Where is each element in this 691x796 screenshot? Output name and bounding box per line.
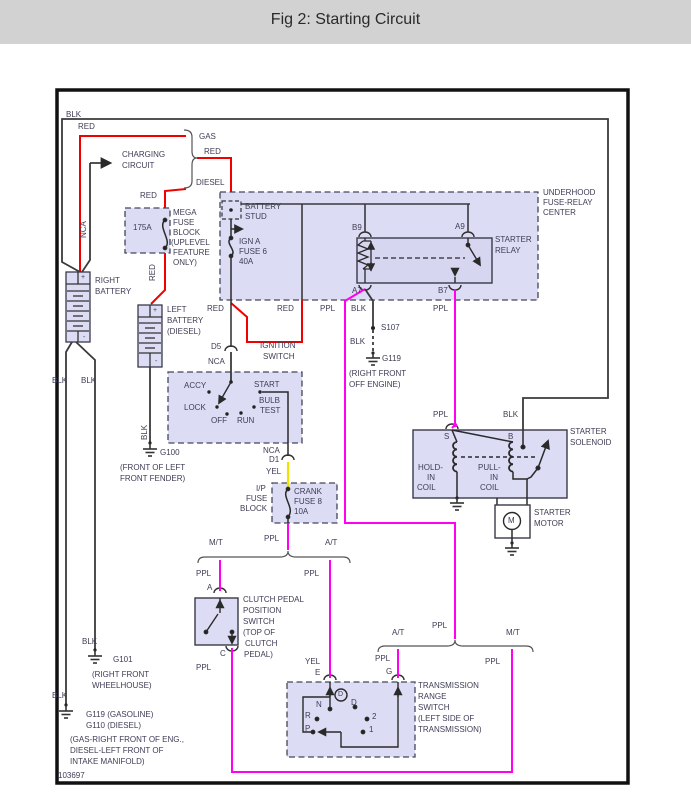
label-yel-trans-e: YEL — [305, 658, 320, 666]
g119-g110-l2: G110 (DIESEL) — [86, 722, 141, 730]
underhood-l2: FUSE-RELAY — [543, 199, 593, 207]
label-ppl-clutch-c: PPL — [196, 664, 211, 672]
trans-pos-d-circled: D — [338, 691, 343, 698]
motor-m: M — [508, 517, 515, 525]
label-at-1: A/T — [325, 539, 337, 547]
trans-terminal-g: G — [386, 668, 392, 676]
label-nca-d1: NCA — [263, 447, 280, 455]
label-ppl-a7: PPL — [320, 305, 335, 313]
battery-stud-l1: BATTERY — [245, 203, 281, 211]
left-battery-l3: (DIESEL) — [167, 328, 201, 336]
clutch-l5: CLUTCH — [245, 640, 277, 648]
battery-stud-l2: STUD — [245, 213, 267, 221]
charging-circuit-line1: CHARGING — [122, 151, 165, 159]
label-red-d5: RED — [207, 305, 224, 313]
g101-l2: WHEELHOUSE) — [92, 682, 152, 690]
g119-g110-n3: INTAKE MANIFOLD) — [70, 758, 145, 766]
ignition-bulb: BULB — [259, 397, 280, 405]
left-battery-minus: - — [155, 358, 157, 365]
trans-terminal-e: E — [315, 669, 320, 677]
ppl-junction-dot — [453, 423, 457, 427]
label-ppl-clutch-a: PPL — [196, 570, 211, 578]
g119-g110-l1: G119 (GASOLINE) — [86, 711, 153, 719]
solenoid-l1: STARTER — [570, 428, 607, 436]
wire-battery-grounds — [66, 342, 150, 705]
g119-engine-l2: OFF ENGINE) — [349, 381, 401, 389]
ip-fuse-l2: FUSE — [246, 495, 267, 503]
ign-fuse-l1: IGN A — [239, 238, 260, 246]
clutch-l1: CLUTCH PEDAL — [243, 596, 304, 604]
label-red-gas: RED — [204, 148, 221, 156]
g101-name: G101 — [113, 656, 133, 664]
underhood-l1: UNDERHOOD — [543, 189, 595, 197]
label-blk-g100: BLK — [141, 425, 149, 440]
ignition-off: OFF — [211, 417, 227, 425]
diagram-number: 103697 — [58, 772, 85, 780]
right-battery-l2: BATTERY — [95, 288, 131, 296]
label-ppl-fuse-out: PPL — [264, 535, 279, 543]
label-gas: GAS — [199, 133, 216, 141]
label-ppl-trans-e: PPL — [304, 570, 319, 578]
charging-circuit-line2: CIRCUIT — [122, 162, 154, 170]
label-diesel: DIESEL — [196, 179, 224, 187]
clutch-l2: POSITION — [243, 607, 281, 615]
trans-pos-1: 1 — [369, 726, 373, 734]
label-red-vert: RED — [149, 264, 157, 281]
left-battery-l2: BATTERY — [167, 317, 203, 325]
s107-splice-dot — [371, 326, 375, 330]
g100-name: G100 — [160, 449, 180, 457]
label-ppl-brace2: PPL — [432, 622, 447, 630]
trans-pos-d: D — [351, 699, 357, 707]
ignition-test: TEST — [260, 407, 280, 415]
relay-a9: A9 — [455, 223, 465, 231]
ignition-l2: SWITCH — [263, 353, 295, 361]
crank-fuse-l1: CRANK — [294, 488, 322, 496]
mega-fuse-l2: FUSE — [173, 219, 194, 227]
ignition-l1: IGNITION — [260, 342, 296, 350]
label-blk-left1: BLK — [52, 377, 67, 385]
label-blk-left2: BLK — [81, 377, 96, 385]
label-blk-a7: BLK — [351, 305, 366, 313]
ign-fuse-l3: 40A — [239, 258, 253, 266]
pull-in-l2: IN — [490, 474, 498, 482]
right-battery-plus: + — [81, 274, 85, 281]
ignition-d5: D5 — [211, 343, 221, 351]
clutch-terminal-a: A — [207, 584, 212, 592]
label-nca-d5: NCA — [208, 358, 225, 366]
mega-fuse-l6: ONLY) — [173, 259, 197, 267]
g119-g110-n2: DIESEL-LEFT FRONT OF — [70, 747, 164, 755]
label-ppl-s: PPL — [433, 411, 448, 419]
ignition-accy: ACCY — [184, 382, 206, 390]
trans-pos-2: 2 — [372, 713, 376, 721]
left-battery-plus: + — [153, 307, 157, 314]
crank-fuse-l2: FUSE 8 — [294, 498, 322, 506]
trans-pos-n: N — [316, 701, 322, 709]
trans-pos-r: R — [305, 712, 311, 720]
g101-l1: (RIGHT FRONT — [92, 671, 149, 679]
mega-fuse-l3: BLOCK — [173, 229, 200, 237]
wire-nca-charging — [82, 163, 110, 272]
g119-engine-l1: (RIGHT FRONT — [349, 370, 406, 378]
clutch-l6: PEDAL) — [244, 651, 273, 659]
ignition-d1: D1 — [269, 456, 279, 464]
label-red-top: RED — [78, 123, 95, 131]
s107-label: S107 — [381, 324, 400, 332]
relay-b9: B9 — [352, 224, 362, 232]
underhood-l3: CENTER — [543, 209, 576, 217]
mega-fuse-l4: (UPLEVEL — [171, 239, 210, 247]
motor-l2: MOTOR — [534, 520, 564, 528]
label-nca-vert: NCA — [80, 221, 88, 238]
relay-b7: B7 — [438, 287, 448, 295]
label-blk-top: BLK — [66, 111, 81, 119]
label-ppl-trans-g: PPL — [375, 655, 390, 663]
ip-fuse-l1: I/P — [256, 485, 266, 493]
label-mt-2: M/T — [506, 629, 520, 637]
mega-fuse-amp: 175A — [133, 224, 152, 232]
trans-l2: RANGE — [418, 693, 446, 701]
clutch-l4: (TOP OF — [243, 629, 275, 637]
hold-in-l3: COIL — [417, 484, 436, 492]
crank-fuse-l3: 10A — [294, 508, 308, 516]
motor-l1: STARTER — [534, 509, 571, 517]
solenoid-s: S — [444, 433, 449, 441]
pull-in-l1: PULL- — [478, 464, 501, 472]
label-blk-s107: BLK — [350, 338, 365, 346]
relay-l2: RELAY — [495, 247, 521, 255]
trans-pos-p: P — [305, 725, 310, 733]
right-battery-minus: - — [83, 334, 85, 341]
mega-fuse-l5: FEATURE — [173, 249, 210, 257]
trans-l1: TRANSMISSION — [418, 682, 479, 690]
ign-fuse-l2: FUSE 6 — [239, 248, 267, 256]
ignition-start: START — [254, 381, 279, 389]
label-red-u: RED — [277, 305, 294, 313]
trans-l4: (LEFT SIDE OF — [418, 715, 474, 723]
trans-l5: TRANSMISSION) — [418, 726, 482, 734]
pull-in-l3: COIL — [480, 484, 499, 492]
left-battery-l1: LEFT — [167, 306, 187, 314]
g119-engine-name: G119 — [382, 355, 401, 363]
clutch-l3: SWITCH — [243, 618, 275, 626]
label-red-diesel: RED — [140, 192, 157, 200]
starter-relay-box — [357, 238, 492, 283]
ip-fuse-l3: BLOCK — [240, 505, 267, 513]
hold-in-l2: IN — [427, 474, 435, 482]
clutch-terminal-c: C — [220, 650, 226, 658]
label-blk-b: BLK — [503, 411, 518, 419]
label-yel-d1: YEL — [266, 468, 281, 476]
label-ppl-mt2: PPL — [485, 658, 500, 666]
hold-in-l1: HOLD- — [418, 464, 443, 472]
relay-l1: STARTER — [495, 236, 532, 244]
solenoid-b: B — [508, 433, 513, 441]
ignition-lock: LOCK — [184, 404, 206, 412]
g100-l1: (FRONT OF LEFT — [120, 464, 185, 472]
label-blk-g101: BLK — [82, 638, 97, 646]
right-battery-l1: RIGHT — [95, 277, 120, 285]
label-mt-1: M/T — [209, 539, 223, 547]
trans-l3: SWITCH — [418, 704, 450, 712]
g100-l2: FRONT FENDER) — [120, 475, 185, 483]
label-at-2: A/T — [392, 629, 404, 637]
g119-g110-n1: (GAS-RIGHT FRONT OF ENG., — [70, 736, 184, 744]
mega-fuse-l1: MEGA — [173, 209, 197, 217]
relay-a7: A7 — [352, 287, 362, 295]
label-blk-g119: BLK — [52, 692, 67, 700]
label-ppl-b7: PPL — [433, 305, 448, 313]
solenoid-l2: SOLENOID — [570, 439, 611, 447]
ignition-run: RUN — [237, 417, 254, 425]
